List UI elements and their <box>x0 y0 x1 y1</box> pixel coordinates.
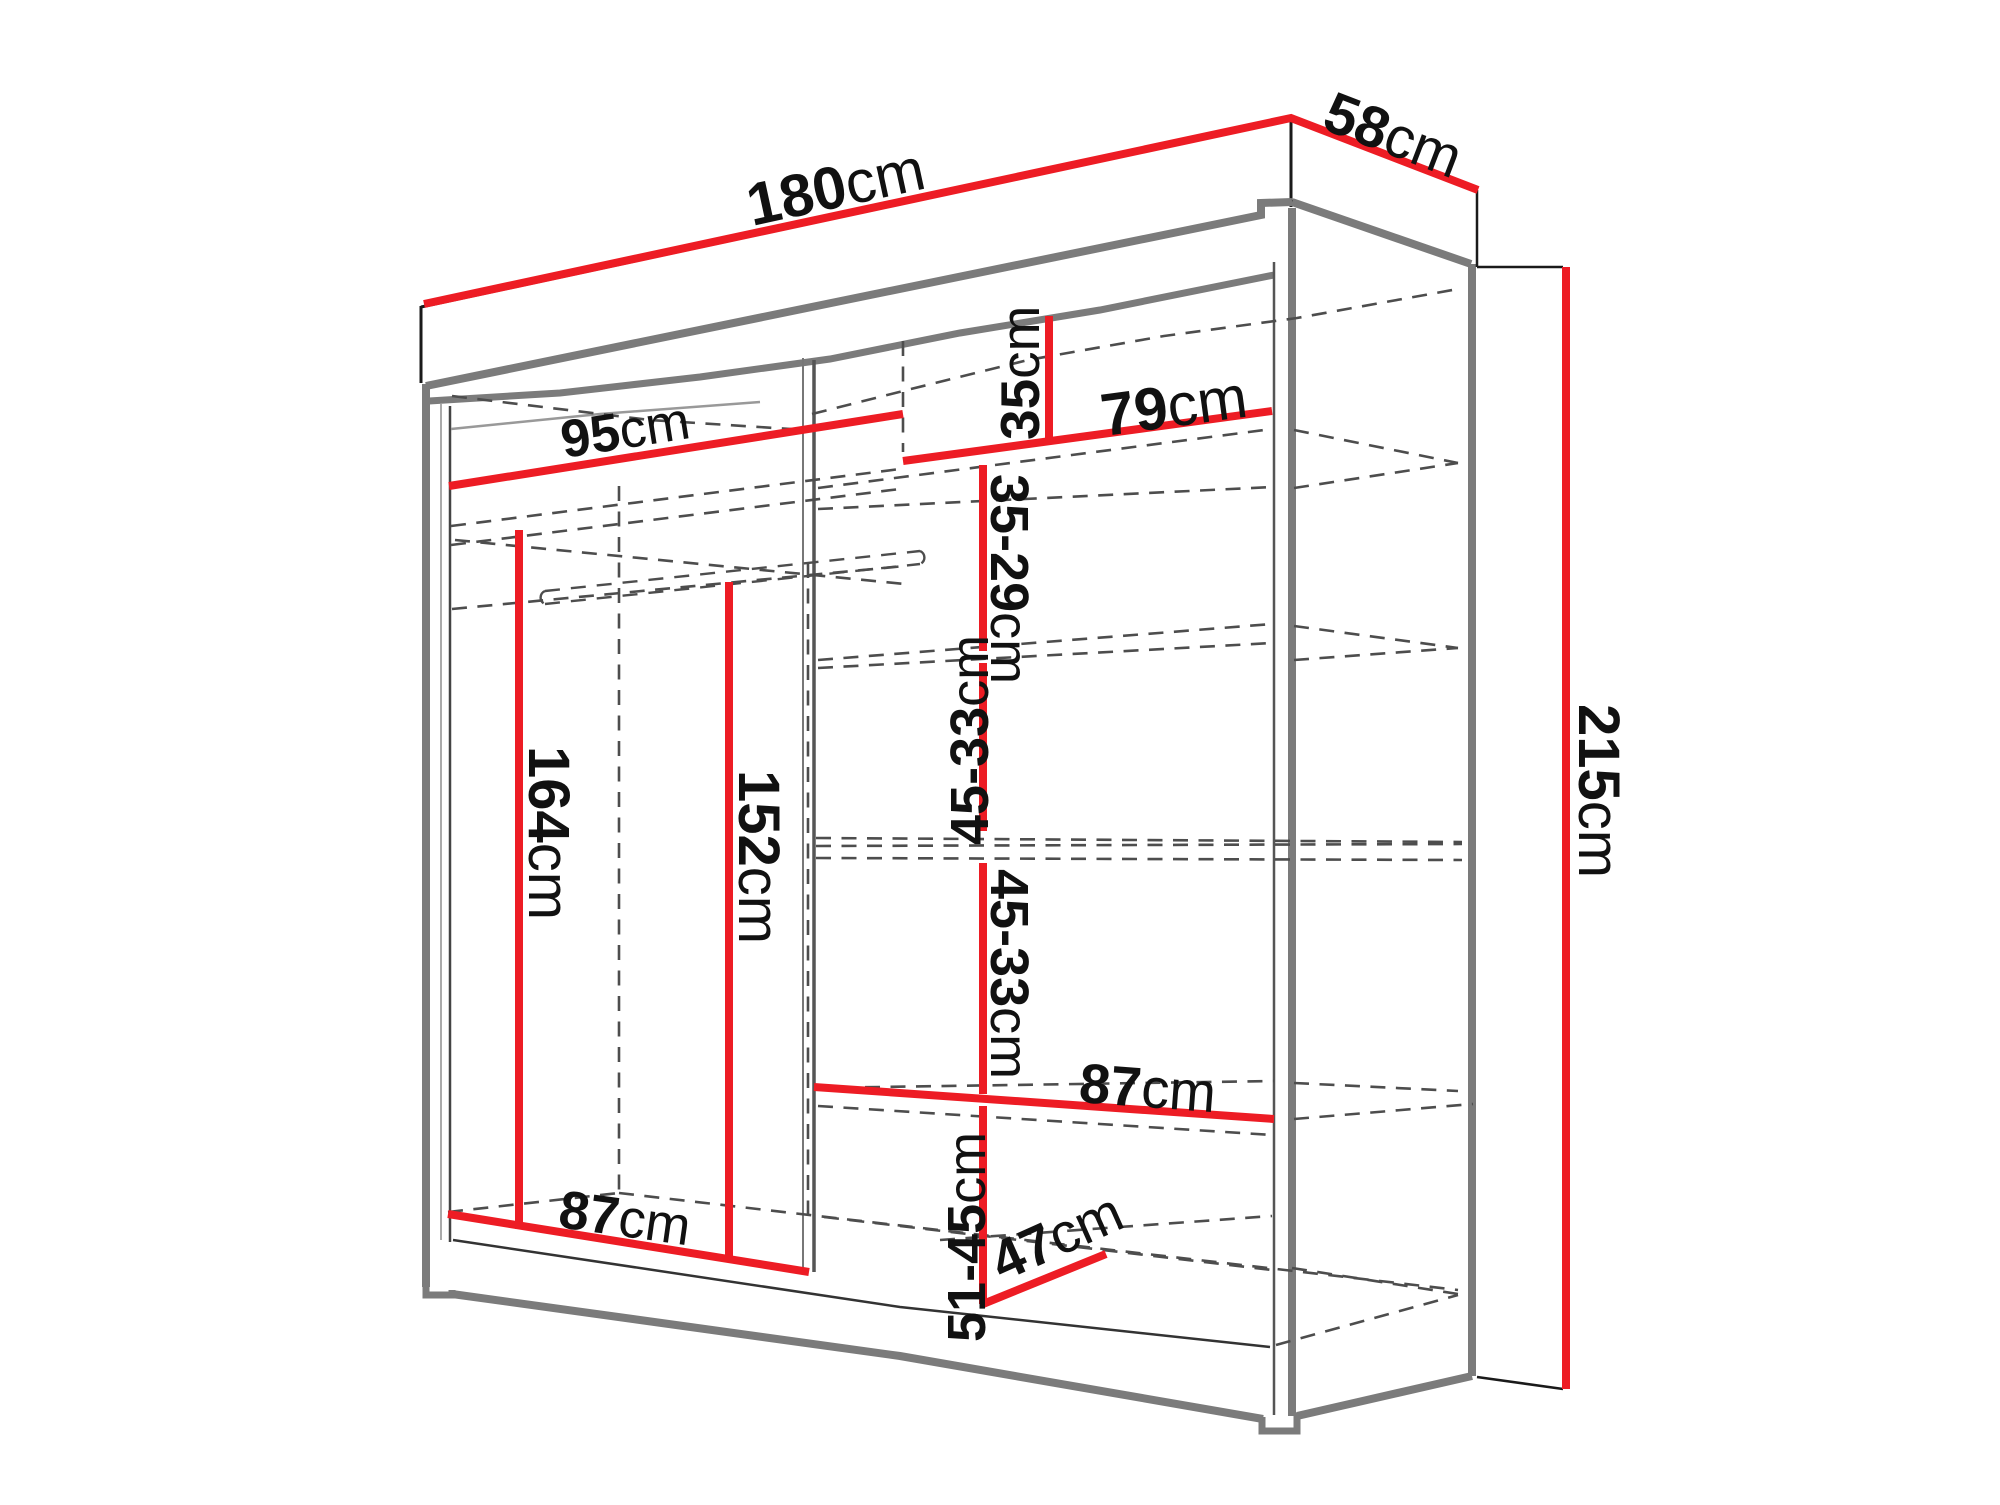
svg-text:35cm: 35cm <box>989 305 1051 440</box>
svg-text:45-33cm: 45-33cm <box>979 869 1039 1079</box>
svg-text:152cm: 152cm <box>726 770 791 944</box>
svg-text:215cm: 215cm <box>1566 704 1631 878</box>
svg-text:87cm: 87cm <box>1077 1051 1218 1124</box>
svg-text:164cm: 164cm <box>516 746 581 920</box>
svg-text:45-33cm: 45-33cm <box>940 635 1000 845</box>
